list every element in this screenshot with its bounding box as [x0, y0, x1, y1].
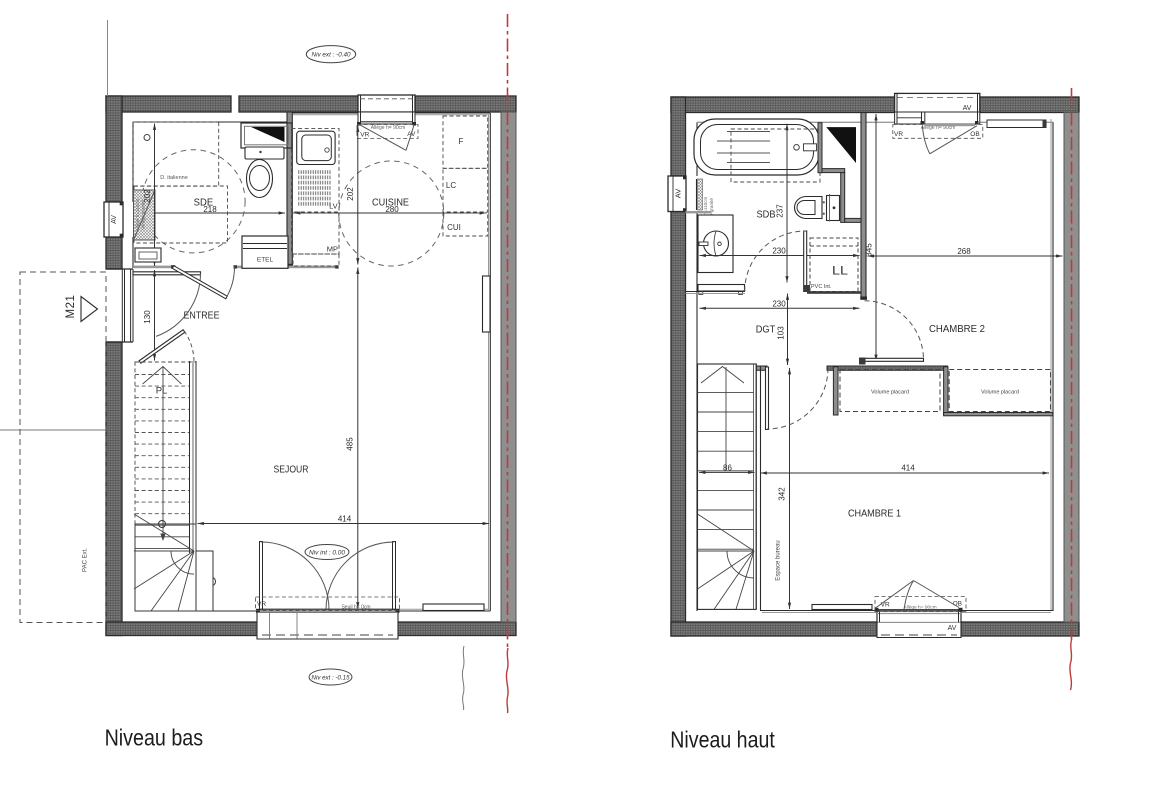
svg-text:SDB: SDB	[757, 209, 776, 221]
svg-text:VR: VR	[360, 132, 369, 139]
svg-text:F: F	[459, 137, 464, 146]
svg-text:485: 485	[345, 437, 354, 451]
svg-text:AV: AV	[111, 215, 118, 224]
svg-text:PL: PL	[156, 386, 168, 397]
svg-text:LV: LV	[329, 202, 338, 211]
svg-text:345: 345	[864, 243, 873, 257]
svg-text:268: 268	[957, 247, 971, 256]
svg-text:103: 103	[776, 326, 785, 340]
svg-text:LC: LC	[446, 181, 456, 190]
svg-text:PAC Ext.: PAC Ext.	[83, 548, 89, 572]
svg-text:Allège h=110cm: Allège h=110cm	[135, 198, 140, 231]
svg-text:LL: LL	[832, 264, 848, 278]
svg-text:230: 230	[772, 247, 786, 256]
svg-text:342: 342	[777, 487, 786, 501]
svg-text:AV: AV	[674, 189, 683, 198]
svg-text:VR: VR	[894, 131, 903, 138]
svg-text:AV: AV	[963, 105, 972, 112]
svg-text:Volume placard: Volume placard	[871, 390, 909, 396]
svg-text:237: 237	[775, 204, 784, 218]
svg-text:Allège h= 90cm: Allège h= 90cm	[903, 605, 936, 611]
svg-text:AV: AV	[948, 625, 957, 632]
svg-text:SEJOUR: SEJOUR	[274, 464, 309, 476]
svg-text:MP: MP	[327, 245, 338, 254]
svg-text:202: 202	[346, 187, 355, 201]
svg-text:Niv ext : -0.15: Niv ext : -0.15	[312, 674, 351, 681]
svg-text:VR: VR	[257, 601, 266, 608]
svg-text:202: 202	[143, 189, 152, 203]
svg-text:Seuil h= 0cm: Seuil h= 0cm	[341, 604, 370, 610]
svg-text:Vitrage granité: Vitrage granité	[141, 200, 146, 230]
svg-text:Niveau bas: Niveau bas	[105, 725, 204, 751]
svg-text:Niveau haut: Niveau haut	[670, 727, 775, 753]
svg-text:DGT: DGT	[756, 324, 776, 336]
svg-text:PVC Int.: PVC Int.	[811, 284, 832, 290]
svg-text:Niv ext : -0.40: Niv ext : -0.40	[312, 52, 352, 59]
svg-text:Espace bureau: Espace bureau	[776, 540, 782, 580]
svg-text:Allège h= 90cm: Allège h= 90cm	[371, 125, 406, 131]
svg-text:130: 130	[143, 310, 152, 324]
svg-text:ETEL: ETEL	[257, 257, 274, 264]
svg-text:VR: VR	[881, 602, 890, 609]
svg-text:OB: OB	[970, 131, 979, 138]
svg-text:414: 414	[901, 464, 915, 473]
svg-text:CHAMBRE 2: CHAMBRE 2	[929, 323, 985, 335]
svg-text:M21: M21	[65, 295, 77, 319]
svg-text:CHAMBRE 1: CHAMBRE 1	[848, 508, 901, 520]
svg-text:86: 86	[723, 464, 732, 473]
svg-text:D. italienne: D. italienne	[160, 175, 188, 181]
svg-text:Niv int : 0.00: Niv int : 0.00	[309, 549, 346, 556]
svg-text:230: 230	[772, 300, 786, 309]
svg-text:Volume placard: Volume placard	[981, 390, 1019, 396]
svg-text:280: 280	[385, 205, 399, 214]
svg-text:414: 414	[338, 515, 352, 524]
svg-text:218: 218	[203, 205, 217, 214]
svg-text:CUI: CUI	[447, 223, 461, 232]
